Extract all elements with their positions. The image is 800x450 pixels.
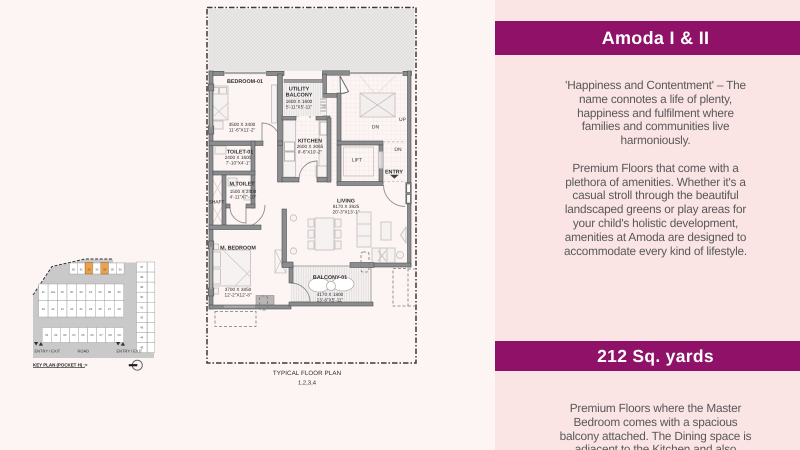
svg-text:1600 X 1600: 1600 X 1600 xyxy=(286,99,313,104)
svg-text:2600 X 3065: 2600 X 3065 xyxy=(297,144,324,149)
svg-text:35: 35 xyxy=(111,267,115,271)
svg-text:1,2,3,4: 1,2,3,4 xyxy=(298,380,317,387)
svg-text:UP: UP xyxy=(399,117,407,123)
svg-text:1500 X 2400: 1500 X 2400 xyxy=(230,189,257,194)
svg-text:21: 21 xyxy=(79,307,83,311)
svg-text:40: 40 xyxy=(140,295,144,299)
svg-text:3700 X 3850: 3700 X 3850 xyxy=(225,287,252,292)
svg-text:SHAFT: SHAFT xyxy=(208,200,224,206)
svg-text:30: 30 xyxy=(117,290,121,294)
svg-text:16: 16 xyxy=(70,307,74,311)
svg-text:LIFT: LIFT xyxy=(352,158,362,164)
svg-text:27: 27 xyxy=(108,307,112,311)
svg-text:06: 06 xyxy=(90,333,94,337)
svg-text:43: 43 xyxy=(140,325,144,329)
svg-text:5'-11"X5'-11": 5'-11"X5'-11" xyxy=(286,104,313,109)
svg-text:3500 X 3400: 3500 X 3400 xyxy=(229,122,256,127)
svg-text:41: 41 xyxy=(140,305,144,309)
svg-text:31: 31 xyxy=(80,267,84,271)
svg-text:30: 30 xyxy=(72,267,76,271)
svg-text:M. BEDROOM: M. BEDROOM xyxy=(220,246,256,252)
svg-text:28: 28 xyxy=(108,290,112,294)
svg-text:20'-3"X13'-1": 20'-3"X13'-1" xyxy=(332,209,359,214)
svg-text:M.TOILET: M.TOILET xyxy=(229,182,255,188)
svg-text:ENTRY / EXIT: ENTRY / EXIT xyxy=(35,349,61,354)
svg-text:ENTRY / EXIT: ENTRY / EXIT xyxy=(117,349,143,354)
svg-text:4'-11"X7'-10": 4'-11"X7'-10" xyxy=(230,194,257,199)
svg-text:36: 36 xyxy=(119,267,123,271)
svg-text:42: 42 xyxy=(140,315,144,319)
svg-text:14: 14 xyxy=(61,307,65,311)
svg-text:24: 24 xyxy=(89,290,93,294)
svg-text:04: 04 xyxy=(72,333,76,337)
svg-text:03: 03 xyxy=(63,333,67,337)
svg-text:23: 23 xyxy=(89,307,93,311)
svg-text:BALCONY: BALCONY xyxy=(286,93,313,99)
svg-text:13'-8"X5'-11": 13'-8"X5'-11" xyxy=(317,297,344,302)
svg-text:12'-2"X12'-8": 12'-2"X12'-8" xyxy=(224,292,251,297)
svg-text:25: 25 xyxy=(98,307,102,311)
svg-text:10: 10 xyxy=(42,307,46,311)
svg-text:2400 X 1600: 2400 X 1600 xyxy=(225,155,252,160)
svg-text:38: 38 xyxy=(140,275,144,279)
svg-text:26: 26 xyxy=(98,290,102,294)
svg-text:DN: DN xyxy=(394,147,402,153)
svg-text:22: 22 xyxy=(79,290,83,294)
svg-text:34: 34 xyxy=(103,267,107,271)
svg-text:TYPICAL FLOOR PLAN: TYPICAL FLOOR PLAN xyxy=(273,370,341,377)
svg-text:15: 15 xyxy=(61,290,65,294)
svg-text:33: 33 xyxy=(95,267,99,271)
svg-text:7'-10"X4'-1": 7'-10"X4'-1" xyxy=(226,160,251,165)
svg-text:KEY PLAN (POCKET H) :>: KEY PLAN (POCKET H) :> xyxy=(33,362,88,367)
svg-text:02: 02 xyxy=(54,333,58,337)
svg-text:20: 20 xyxy=(70,290,74,294)
svg-text:12a: 12a xyxy=(50,290,55,294)
svg-text:ENTRY: ENTRY xyxy=(385,170,403,176)
svg-text:09: 09 xyxy=(118,333,122,337)
svg-text:8'-6"X10'-2": 8'-6"X10'-2" xyxy=(298,149,323,154)
svg-text:39: 39 xyxy=(140,285,144,289)
svg-text:32: 32 xyxy=(87,267,91,271)
svg-text:05: 05 xyxy=(81,333,85,337)
svg-text:12: 12 xyxy=(51,307,55,311)
svg-text:29: 29 xyxy=(117,307,121,311)
svg-text:07: 07 xyxy=(99,333,103,337)
svg-text:11'-6"X11'-2": 11'-6"X11'-2" xyxy=(229,127,256,132)
svg-text:08: 08 xyxy=(108,333,112,337)
svg-text:BEDROOM-01: BEDROOM-01 xyxy=(227,79,263,85)
svg-text:4170 X 1800: 4170 X 1800 xyxy=(317,292,344,297)
svg-text:BALCONY-01: BALCONY-01 xyxy=(313,275,347,281)
svg-text:11: 11 xyxy=(42,290,45,294)
svg-text:01: 01 xyxy=(45,333,49,337)
svg-text:ROAD: ROAD xyxy=(78,349,90,354)
svg-text:DN: DN xyxy=(372,125,380,131)
svg-text:44: 44 xyxy=(140,336,144,340)
svg-text:6170 X 3925: 6170 X 3925 xyxy=(333,204,360,209)
svg-text:37: 37 xyxy=(140,265,144,269)
